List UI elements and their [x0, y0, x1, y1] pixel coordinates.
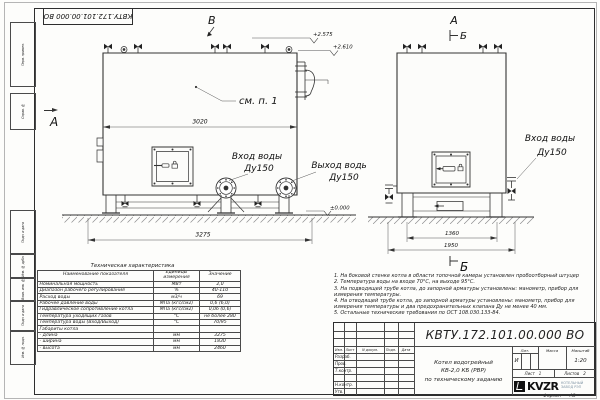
row-tkontr: Т.контр.: [335, 367, 356, 374]
note-item: 3. На подводящей трубе котла, до запорно…: [334, 287, 592, 299]
margin-cell-inv-dubl: Инв. № дубл.: [10, 253, 36, 279]
section-b-label-bottom: Б: [460, 260, 468, 274]
margin-cell-perv-primen: Перв. примен.: [10, 22, 36, 87]
water-inlet-flange: [216, 178, 236, 198]
mass-header: Масса: [538, 347, 566, 353]
front-top-valves: [104, 44, 269, 53]
drawing-sheet: Перв. примен. Справ. № Подп. и дата Инв.…: [0, 0, 600, 400]
kvzr-logo: KVZR КОТЕЛЬНЫЙ ЗАВОД РЭП: [514, 378, 593, 394]
flue-duct: [295, 62, 328, 100]
scale-value: 1:20: [566, 354, 595, 368]
svg-text:Ду150: Ду150: [536, 148, 567, 158]
water-outlet-label: Выход воды Ду150: [292, 161, 366, 183]
table-row: - высотамм2460: [38, 345, 241, 351]
section-b-mark-bottom: [450, 256, 458, 266]
drain-valve-3: [255, 195, 262, 207]
notes-block: 1. На боковой стенке котла в области топ…: [334, 274, 592, 318]
margin-cell-vzam-inv: Взам. инв. №: [10, 277, 36, 302]
product-name-line3: по техническому заданию: [425, 376, 503, 384]
doc-number: КВТУ.172.101.00.000 ВО: [415, 323, 595, 346]
side-inlet-label: Вход воды Ду150: [517, 134, 575, 179]
svg-text:Ду150: Ду150: [243, 164, 274, 174]
kvzr-logo-icon: [514, 381, 525, 392]
side-stub-fittings: [97, 138, 103, 162]
side-left-valve: [385, 185, 397, 203]
svg-text:+2.610: +2.610: [333, 45, 353, 51]
drain-valve-1: [122, 195, 129, 207]
format-label: ФорматА3: [543, 394, 576, 399]
view-b-label: В: [208, 14, 216, 27]
elevation-mark-2610: +2.610: [298, 45, 353, 56]
col-list: Лист: [344, 346, 356, 353]
margin-cell-podp-data-1: Подп. и дата: [10, 210, 36, 255]
svg-text:1950: 1950: [444, 243, 458, 249]
product-name-line1: Котел водогрейный: [434, 359, 493, 367]
col-izm: Изм.: [334, 346, 344, 353]
product-name: Котел водогрейный КВ-2,0 КБ (РВР) по тех…: [415, 348, 512, 395]
kvzr-logo-text: KVZR: [527, 380, 558, 393]
col-data: Дата: [398, 346, 414, 353]
tech-table: Наименование показателя Единицы измерени…: [37, 270, 241, 352]
svg-text:1360: 1360: [445, 231, 459, 237]
sheet-cell: Лист1: [512, 369, 554, 377]
elevation-mark-zero: ±0.000: [306, 206, 350, 216]
svg-text:±0.000: ±0.000: [330, 206, 350, 212]
title-block: КВТУ.172.101.00.000 ВО Изм. Лист N докум…: [333, 322, 596, 396]
col-value: Значение: [200, 271, 241, 282]
lit-header: Лит.: [512, 347, 538, 353]
svg-text:Вход воды: Вход воды: [525, 134, 575, 144]
svg-text:Выход воды: Выход воды: [311, 161, 366, 171]
section-b-mark-top: [450, 30, 458, 41]
product-name-line2: КВ-2,0 КБ (РВР): [441, 367, 486, 375]
side-boiler-body: [397, 53, 506, 193]
col-name: Наименование показателя: [38, 271, 154, 282]
svg-text:3275: 3275: [195, 232, 210, 239]
boiler-front-view: В +2.575 +2.610: [56, 8, 366, 260]
front-supports: [102, 195, 293, 213]
note-item: 4. На отводящей трубе котла, до запорной…: [334, 299, 592, 311]
burner-drawer: [434, 202, 463, 211]
tech-table-header-row: Наименование показателя Единицы измерени…: [38, 271, 241, 282]
svg-text:см. п. 1: см. п. 1: [239, 96, 278, 107]
note-item: 5. Остальные технические требования по О…: [334, 311, 592, 317]
col-podp: Подп.: [384, 346, 398, 353]
margin-cell-inv-podl: Инв. № подл.: [10, 330, 36, 365]
section-b-label-top: Б: [460, 31, 467, 42]
svg-text:+2.575: +2.575: [313, 32, 333, 38]
tech-table-title: Техническая характеристика: [37, 263, 228, 269]
scale-header: Масштаб: [566, 347, 595, 353]
drain-valve-2: [194, 195, 201, 207]
row-prov: Пров.: [335, 360, 356, 367]
col-doc: N докум.: [356, 346, 384, 353]
svg-text:3020: 3020: [192, 119, 207, 126]
view-b-arrow: [207, 27, 214, 37]
sheets-cell: Листов2: [555, 369, 595, 377]
kvzr-logo-subtext: КОТЕЛЬНЫЙ ЗАВОД РЭП: [561, 382, 583, 390]
row-razrab: Разраб.: [335, 353, 356, 360]
dim-1360: 1360: [407, 222, 497, 242]
margin-cell-sprav-n: Справ. №: [10, 93, 36, 130]
svg-text:Вход воды: Вход воды: [232, 152, 282, 162]
side-inlet-stub: [506, 178, 516, 201]
ground-line-side: [368, 217, 534, 225]
view-a-label-right: А: [449, 14, 458, 27]
elevation-mark-2575: +2.575: [252, 32, 333, 43]
lit-value: И: [512, 354, 521, 368]
row-nkontr: Н.контр.: [335, 381, 356, 388]
row-utv: Утв.: [335, 388, 356, 395]
boiler-side-view: А Б: [366, 8, 595, 274]
side-top-valves: [403, 44, 502, 53]
svg-text:Ду150: Ду150: [328, 173, 359, 183]
col-units: Единицы измерения: [154, 271, 200, 282]
margin-cell-podp-data-2: Подп. и дата: [10, 300, 36, 332]
